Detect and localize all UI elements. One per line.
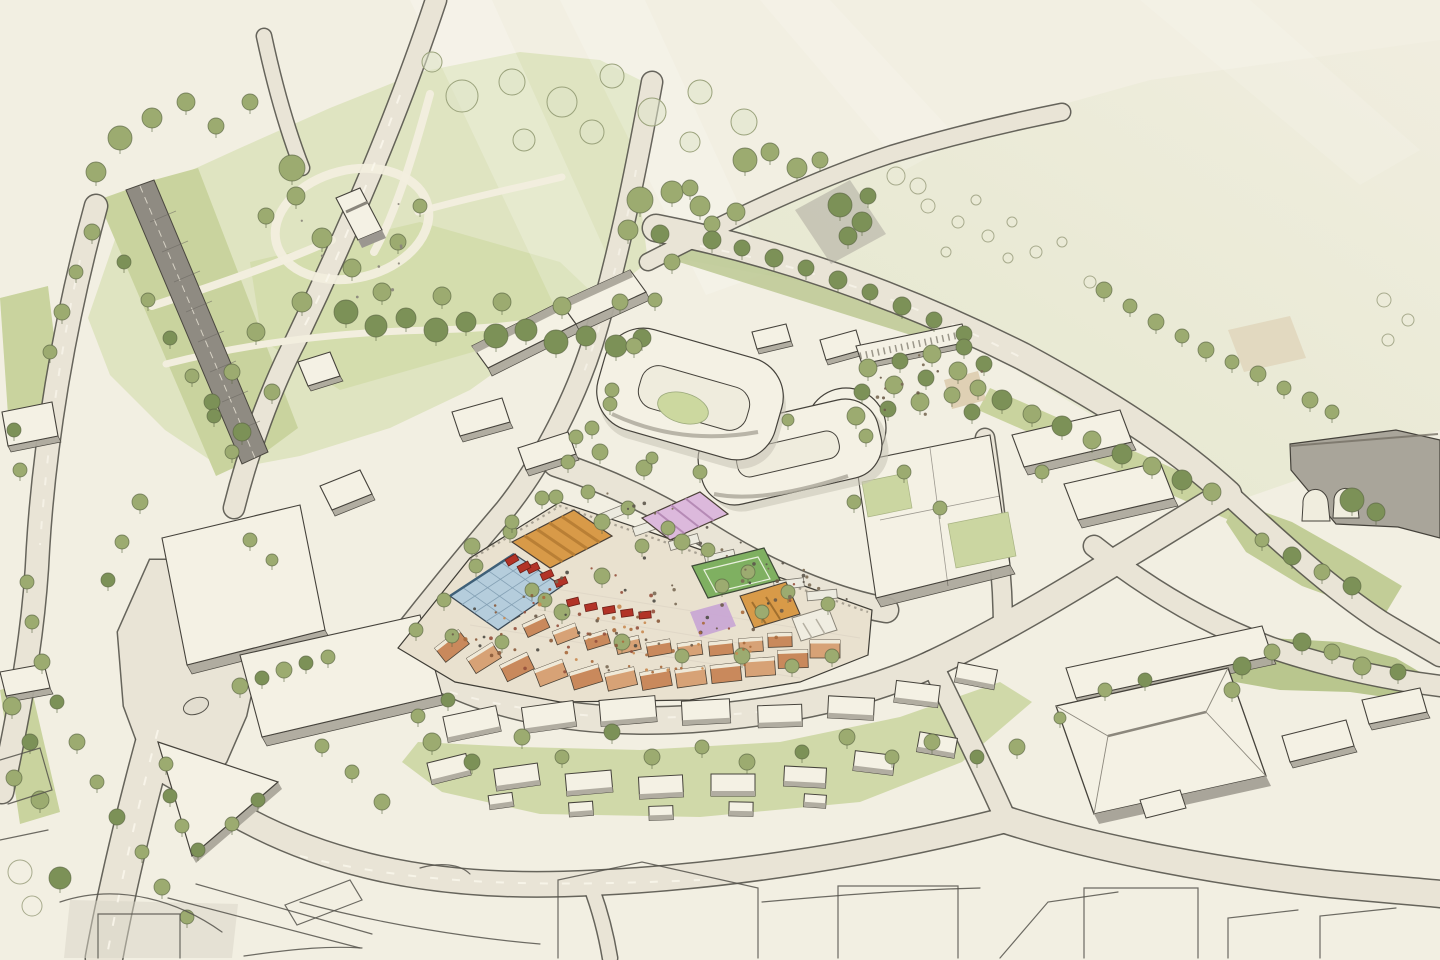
house	[488, 792, 514, 809]
tree	[646, 452, 658, 464]
tree	[1112, 444, 1132, 464]
tree	[675, 649, 689, 663]
tree	[276, 662, 292, 678]
tree	[549, 490, 563, 504]
house	[565, 770, 613, 796]
tree	[926, 312, 942, 328]
tree	[299, 656, 313, 670]
tree	[661, 521, 675, 535]
tree	[1225, 355, 1239, 369]
tree	[1123, 299, 1137, 313]
tree	[515, 319, 537, 341]
tree	[292, 292, 312, 312]
tree	[422, 52, 442, 72]
tree	[627, 187, 653, 213]
tree	[499, 69, 525, 95]
tree	[674, 534, 690, 550]
tree	[828, 193, 852, 217]
tree	[225, 445, 239, 459]
tree	[445, 629, 459, 643]
tree	[1390, 664, 1406, 680]
tree	[177, 93, 195, 111]
house	[638, 775, 683, 799]
tree	[854, 384, 870, 400]
house	[729, 802, 753, 816]
tree	[1148, 314, 1164, 330]
tree	[1009, 739, 1025, 755]
tree	[715, 579, 729, 593]
tree	[43, 345, 57, 359]
tree	[918, 370, 934, 386]
tree	[115, 535, 129, 549]
tree	[1283, 547, 1301, 565]
tree	[373, 283, 391, 301]
tree	[693, 465, 707, 479]
tree	[69, 734, 85, 750]
tree	[163, 789, 177, 803]
tree	[893, 297, 911, 315]
tree	[224, 364, 240, 380]
tree	[1367, 503, 1385, 521]
tree	[513, 129, 535, 151]
tree	[456, 312, 476, 332]
tree	[279, 155, 305, 181]
tree	[135, 845, 149, 859]
tree	[734, 240, 750, 256]
tree	[944, 387, 960, 403]
tree	[605, 383, 619, 397]
tree	[594, 514, 610, 530]
house	[711, 774, 755, 796]
tree	[885, 376, 903, 394]
tree	[852, 212, 872, 232]
tree	[1277, 381, 1291, 395]
tree	[600, 64, 624, 88]
tree	[374, 794, 390, 810]
tree	[661, 181, 683, 203]
tree	[594, 568, 610, 584]
tree	[464, 538, 480, 554]
tree	[847, 407, 865, 425]
tree	[159, 757, 173, 771]
tree	[334, 300, 358, 324]
masterplan-svg	[0, 0, 1440, 960]
tree	[437, 593, 451, 607]
house	[569, 801, 594, 817]
tree	[964, 404, 980, 420]
tree	[514, 729, 530, 745]
tree	[933, 501, 947, 515]
tree	[648, 293, 662, 307]
tree	[554, 604, 570, 620]
tree	[13, 463, 27, 477]
tree	[1343, 577, 1361, 595]
tree	[544, 330, 568, 354]
tree	[847, 495, 861, 509]
tree	[592, 444, 608, 460]
tree	[34, 654, 50, 670]
tree	[1324, 644, 1340, 660]
tree	[312, 228, 332, 248]
tree	[441, 693, 455, 707]
tree	[992, 390, 1012, 410]
tree	[976, 356, 992, 372]
tree	[821, 597, 835, 611]
tree	[569, 430, 583, 444]
masterplan-aerial-sketch	[0, 0, 1440, 960]
tree	[795, 745, 809, 759]
tree	[142, 108, 162, 128]
tree	[411, 709, 425, 723]
tree	[604, 724, 620, 740]
tree	[264, 384, 280, 400]
tree	[825, 649, 839, 663]
tree	[154, 879, 170, 895]
tree	[7, 423, 21, 437]
tree	[423, 733, 441, 751]
tree	[695, 740, 709, 754]
tree	[108, 126, 132, 150]
tree	[924, 734, 940, 750]
tree	[605, 335, 627, 357]
tree	[69, 265, 83, 279]
tree	[785, 659, 799, 673]
tree	[651, 225, 669, 243]
tree	[547, 87, 577, 117]
tree	[1233, 657, 1251, 675]
tree	[626, 338, 642, 354]
tree	[208, 118, 224, 134]
house	[804, 794, 827, 809]
tree	[580, 120, 604, 144]
tree	[1302, 392, 1318, 408]
tree	[243, 533, 257, 547]
tree	[233, 423, 251, 441]
tree	[191, 843, 205, 857]
tree	[612, 294, 628, 310]
tree	[839, 729, 855, 745]
tree	[185, 369, 199, 383]
tree	[829, 271, 847, 289]
tree	[232, 678, 248, 694]
tree	[911, 393, 929, 411]
tree	[1054, 712, 1066, 724]
tree	[266, 554, 278, 566]
tree	[923, 345, 941, 363]
tree	[493, 293, 511, 311]
house	[894, 680, 940, 707]
tree	[446, 80, 478, 112]
tree	[287, 187, 305, 205]
tree	[90, 775, 104, 789]
tree	[956, 339, 972, 355]
tree	[755, 605, 769, 619]
tree	[880, 401, 896, 417]
tree	[1340, 488, 1364, 512]
tree	[84, 224, 100, 240]
tree	[117, 255, 131, 269]
tree	[1255, 533, 1269, 547]
tree	[495, 635, 509, 649]
tree	[409, 623, 423, 637]
tree	[859, 359, 877, 377]
tree	[1293, 633, 1311, 651]
tree	[365, 315, 387, 337]
tree	[49, 867, 71, 889]
tree	[561, 455, 575, 469]
tree	[3, 697, 21, 715]
tree	[132, 494, 148, 510]
tree	[576, 326, 596, 346]
tree	[535, 491, 549, 505]
tree	[1203, 483, 1221, 501]
tree	[644, 749, 660, 765]
tree	[734, 648, 750, 664]
tree	[680, 132, 700, 152]
tree	[247, 323, 265, 341]
tree	[433, 287, 451, 305]
tree	[618, 220, 638, 240]
tree	[242, 94, 258, 110]
tree	[1172, 470, 1192, 490]
tree	[396, 308, 416, 328]
tree	[970, 380, 986, 396]
tree	[25, 615, 39, 629]
tree	[1264, 644, 1280, 660]
tree	[54, 304, 70, 320]
house	[681, 699, 730, 725]
tree	[635, 539, 649, 553]
tree	[251, 793, 265, 807]
house	[758, 704, 803, 728]
tree	[321, 650, 335, 664]
tree	[1023, 405, 1041, 423]
tree	[949, 362, 967, 380]
tree	[765, 249, 783, 267]
tree	[1198, 342, 1214, 358]
tree	[469, 559, 483, 573]
tree	[1250, 366, 1266, 382]
tree	[812, 152, 828, 168]
tree	[315, 739, 329, 753]
tree	[424, 318, 448, 342]
tree	[727, 203, 745, 221]
tree	[413, 199, 427, 213]
tree	[897, 465, 911, 479]
tree	[741, 565, 755, 579]
tree	[255, 671, 269, 685]
tree	[585, 421, 599, 435]
tree	[970, 750, 984, 764]
tree	[1096, 282, 1112, 298]
tree	[1035, 465, 1049, 479]
tree	[782, 414, 794, 426]
tree	[860, 188, 876, 204]
tree	[484, 324, 508, 348]
tree	[638, 98, 666, 126]
tree	[603, 397, 617, 411]
tree	[1052, 416, 1072, 436]
tree	[345, 765, 359, 779]
tree	[690, 196, 710, 216]
tree	[664, 254, 680, 270]
tree	[1098, 683, 1112, 697]
tree	[733, 148, 757, 172]
tree	[1224, 682, 1240, 698]
tree	[207, 409, 221, 423]
tree	[862, 284, 878, 300]
tree	[109, 809, 125, 825]
tree	[581, 485, 595, 499]
tree	[464, 754, 480, 770]
tree	[798, 260, 814, 276]
tree	[1083, 431, 1101, 449]
house	[827, 696, 874, 720]
tree	[86, 162, 106, 182]
house	[599, 696, 657, 727]
tree	[22, 734, 38, 750]
tree	[163, 331, 177, 345]
tree	[892, 353, 908, 369]
tree	[703, 231, 721, 249]
tree	[175, 819, 189, 833]
tree	[739, 754, 755, 770]
tree	[204, 394, 220, 410]
tree	[839, 227, 857, 245]
house	[784, 766, 827, 788]
tree	[1353, 657, 1371, 675]
tree	[787, 158, 807, 178]
tree	[1325, 405, 1339, 419]
tree	[688, 80, 712, 104]
tree	[555, 750, 569, 764]
tree	[701, 543, 715, 557]
tree	[731, 109, 757, 135]
tree	[553, 297, 571, 315]
tree	[859, 429, 873, 443]
tree	[20, 575, 34, 589]
tree	[885, 750, 899, 764]
tree	[343, 259, 361, 277]
house	[649, 806, 673, 821]
tree	[1314, 564, 1330, 580]
tree	[258, 208, 274, 224]
tree	[6, 770, 22, 786]
tree	[704, 216, 720, 232]
tree	[1175, 329, 1189, 343]
tree	[141, 293, 155, 307]
tree	[1143, 457, 1161, 475]
tree	[682, 180, 698, 196]
tree	[225, 817, 239, 831]
tree	[390, 234, 406, 250]
tree	[761, 143, 779, 161]
tree	[505, 515, 519, 529]
tree	[1138, 673, 1152, 687]
tree	[50, 695, 64, 709]
tree	[101, 573, 115, 587]
